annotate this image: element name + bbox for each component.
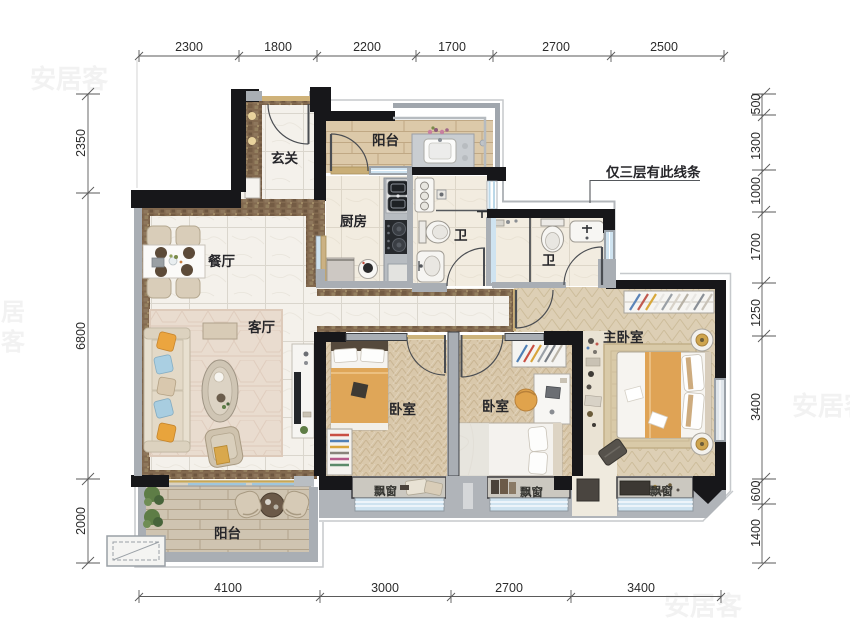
svg-text:4100: 4100 [214, 581, 242, 595]
svg-text:安居客: 安居客 [792, 391, 850, 421]
svg-text:500: 500 [749, 94, 763, 115]
svg-text:1300: 1300 [749, 132, 763, 160]
svg-text:1800: 1800 [264, 40, 292, 54]
svg-text:2350: 2350 [74, 129, 88, 157]
svg-text:600: 600 [749, 481, 763, 502]
svg-text:2200: 2200 [353, 40, 381, 54]
svg-text:卫: 卫 [542, 253, 556, 268]
svg-text:客厅: 客厅 [247, 319, 275, 335]
svg-text:3000: 3000 [371, 581, 399, 595]
svg-text:1400: 1400 [749, 519, 763, 547]
svg-text:玄关: 玄关 [271, 150, 298, 166]
svg-text:飘窗: 飘窗 [374, 484, 397, 498]
svg-text:餐厅: 餐厅 [207, 253, 235, 269]
svg-text:客: 客 [1, 328, 26, 356]
svg-text:飘窗: 飘窗 [520, 485, 543, 499]
svg-text:2000: 2000 [74, 507, 88, 535]
svg-text:主卧室: 主卧室 [603, 329, 644, 345]
svg-text:卧室: 卧室 [482, 398, 509, 414]
svg-text:厨房: 厨房 [340, 213, 367, 229]
svg-text:1250: 1250 [749, 299, 763, 327]
svg-text:安居客: 安居客 [30, 64, 109, 94]
svg-text:卧室: 卧室 [389, 401, 416, 417]
svg-text:2300: 2300 [175, 40, 203, 54]
svg-text:飘窗: 飘窗 [650, 484, 673, 498]
svg-text:3400: 3400 [627, 581, 655, 595]
svg-text:居: 居 [1, 299, 25, 326]
svg-text:2500: 2500 [650, 40, 678, 54]
svg-text:6800: 6800 [74, 322, 88, 350]
svg-text:卫: 卫 [454, 228, 468, 243]
svg-text:1000: 1000 [749, 177, 763, 205]
svg-text:安居客: 安居客 [664, 591, 743, 621]
svg-text:2700: 2700 [495, 581, 523, 595]
svg-text:2700: 2700 [542, 40, 570, 54]
svg-text:阳台: 阳台 [214, 525, 241, 541]
svg-text:仅三层有此线条: 仅三层有此线条 [605, 164, 701, 180]
svg-text:1700: 1700 [438, 40, 466, 54]
svg-text:1700: 1700 [749, 233, 763, 261]
svg-text:3400: 3400 [749, 393, 763, 421]
svg-text:阳台: 阳台 [372, 132, 399, 148]
